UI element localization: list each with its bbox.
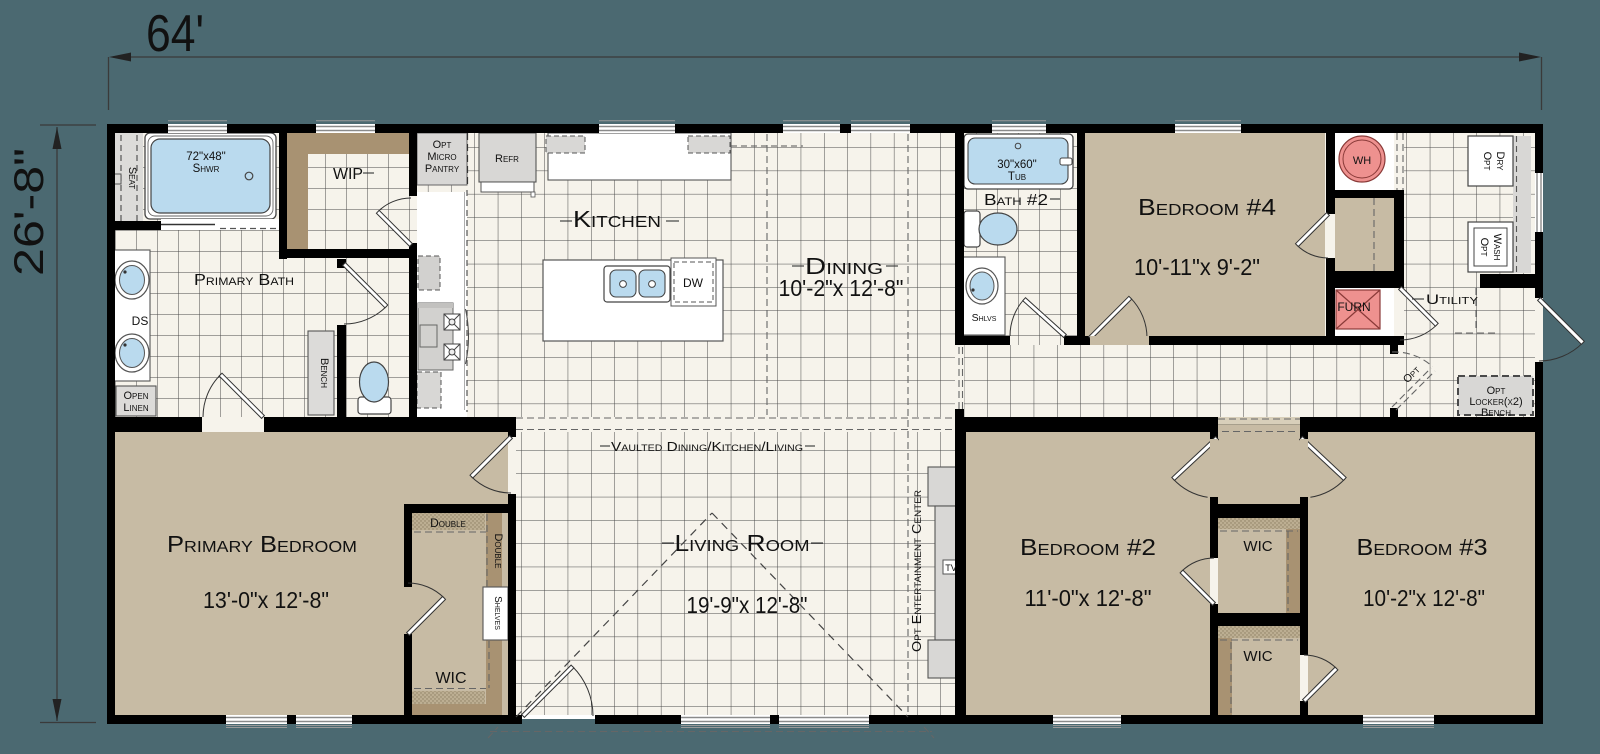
svg-text:Vaulted Dining/Kitchen/Living: Vaulted Dining/Kitchen/Living xyxy=(611,439,803,454)
svg-text:Opt Entertainment Center: Opt Entertainment Center xyxy=(909,489,924,652)
svg-text:Dry: Dry xyxy=(1494,152,1506,172)
svg-text:Shelves: Shelves xyxy=(492,596,503,630)
svg-text:10'-2"x 12'-8": 10'-2"x 12'-8" xyxy=(779,275,904,301)
svg-text:Primary Bath: Primary Bath xyxy=(194,272,294,289)
svg-text:Primary Bedroom: Primary Bedroom xyxy=(167,531,357,557)
svg-text:Tub: Tub xyxy=(1008,171,1026,183)
svg-text:WIP: WIP xyxy=(333,166,363,183)
svg-text:13'-0"x 12'-8": 13'-0"x 12'-8" xyxy=(203,587,329,613)
svg-text:Shwr: Shwr xyxy=(193,163,220,175)
svg-text:DW: DW xyxy=(683,276,704,290)
svg-text:Bedroom #2: Bedroom #2 xyxy=(1020,534,1156,560)
svg-text:WIC: WIC xyxy=(1243,538,1272,555)
svg-text:Linen: Linen xyxy=(123,402,148,414)
svg-text:TV: TV xyxy=(945,563,957,573)
svg-text:Living Room: Living Room xyxy=(675,530,810,556)
svg-text:Kitchen: Kitchen xyxy=(573,206,661,232)
svg-text:Bench: Bench xyxy=(318,358,330,388)
svg-text:WH: WH xyxy=(1353,155,1371,167)
svg-text:10'-11"x 9'-2": 10'-11"x 9'-2" xyxy=(1134,254,1260,280)
svg-text:Open: Open xyxy=(123,390,148,402)
svg-text:Double: Double xyxy=(492,533,504,568)
svg-text:WIC: WIC xyxy=(1243,648,1272,665)
svg-text:Bench: Bench xyxy=(1481,407,1511,419)
svg-text:DS: DS xyxy=(132,314,149,328)
svg-text:Bedroom #3: Bedroom #3 xyxy=(1357,534,1488,560)
svg-text:Double: Double xyxy=(430,516,466,530)
svg-text:Opt: Opt xyxy=(1478,238,1490,257)
svg-text:Bath #2: Bath #2 xyxy=(984,192,1048,209)
svg-text:Shlvs: Shlvs xyxy=(972,312,997,324)
svg-text:FURN: FURN xyxy=(1337,300,1370,314)
svg-text:WIC: WIC xyxy=(435,670,466,687)
svg-text:Opt: Opt xyxy=(1481,152,1493,171)
svg-text:26'-8": 26'-8" xyxy=(5,148,52,276)
svg-text:64': 64' xyxy=(146,5,204,63)
svg-text:72"x48": 72"x48" xyxy=(186,151,226,163)
svg-text:Wash: Wash xyxy=(1491,234,1503,261)
svg-text:19'-9"x 12'-8": 19'-9"x 12'-8" xyxy=(687,592,808,618)
svg-text:Refr: Refr xyxy=(495,153,519,165)
svg-text:Opt: Opt xyxy=(433,139,452,151)
svg-text:11'-0"x 12'-8": 11'-0"x 12'-8" xyxy=(1025,585,1152,611)
svg-text:Seat: Seat xyxy=(126,167,138,189)
svg-text:Utility: Utility xyxy=(1426,291,1478,307)
svg-text:Pantry: Pantry xyxy=(425,163,460,175)
svg-text:30"x60": 30"x60" xyxy=(997,159,1037,171)
svg-text:Bedroom #4: Bedroom #4 xyxy=(1138,194,1276,220)
svg-text:10'-2"x 12'-8": 10'-2"x 12'-8" xyxy=(1363,585,1485,611)
svg-text:Micro: Micro xyxy=(427,151,456,163)
